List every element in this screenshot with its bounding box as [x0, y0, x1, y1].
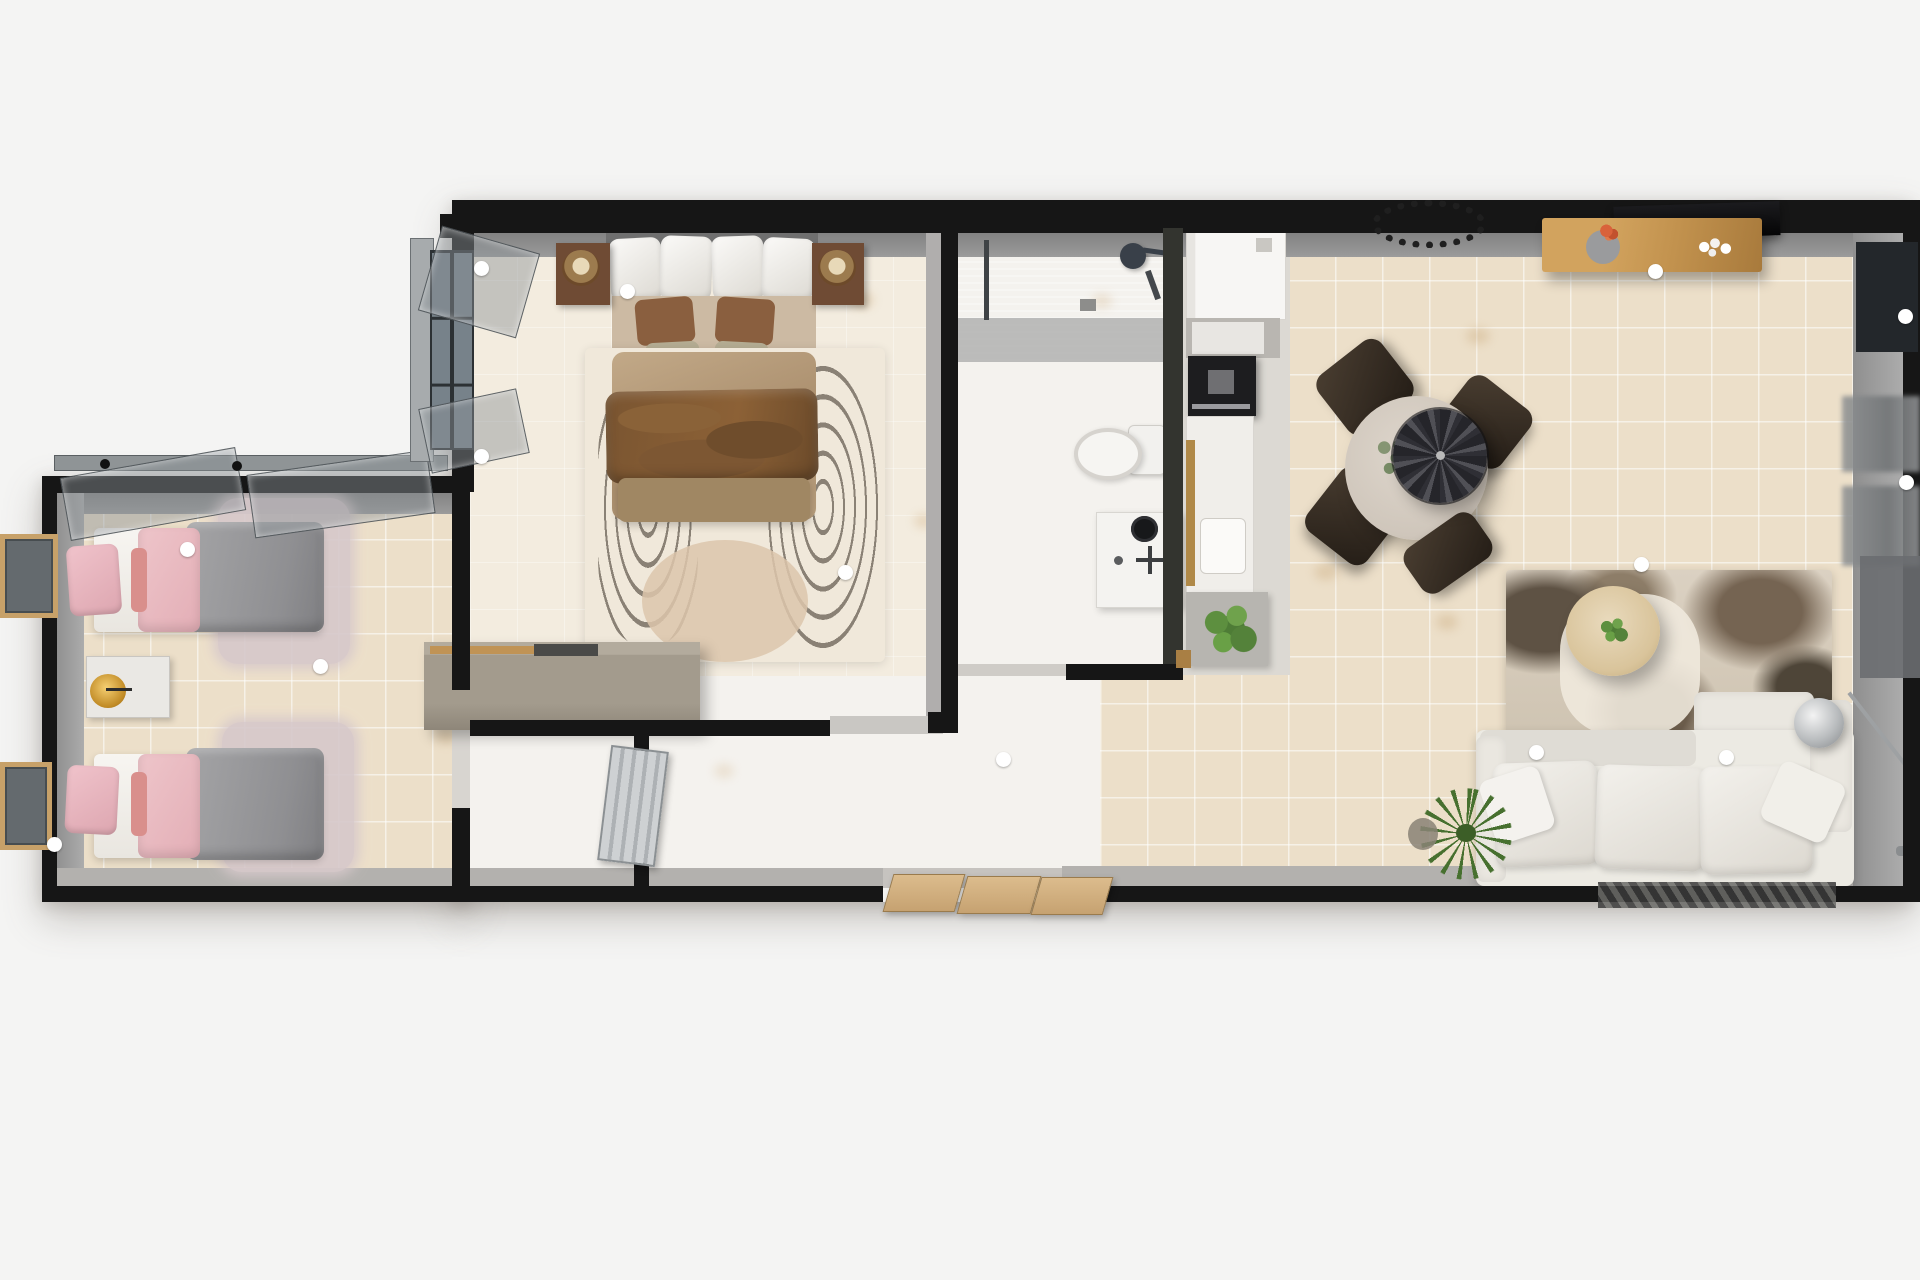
- kitchen-fridge-handle: [1256, 238, 1272, 252]
- twin-wall-frame-2[interactable]: [0, 762, 52, 850]
- wall-wing-right-lower[interactable]: [452, 808, 470, 888]
- sideboard-coral-decor[interactable]: [1688, 231, 1742, 263]
- single-bed-1-duvet-grey[interactable]: [186, 522, 324, 632]
- master-bed-foot[interactable]: [618, 478, 810, 522]
- master-lamp-left[interactable]: [562, 250, 600, 286]
- twin-wall-frame-1[interactable]: [0, 534, 58, 618]
- kitchen-planter-wood-edge: [1176, 650, 1191, 668]
- wall-master-bathroom-foot[interactable]: [928, 712, 958, 733]
- drag-handle[interactable]: [180, 542, 195, 557]
- right-wall-shelf-upper[interactable]: [1842, 396, 1920, 472]
- palm-plant-center: [1456, 824, 1476, 842]
- master-pillow-brown-2[interactable]: [714, 296, 775, 346]
- right-wall-panel-dark[interactable]: [1860, 556, 1920, 678]
- sofa-seat-cushion-2[interactable]: [1594, 764, 1708, 872]
- threshold-master-door: [830, 716, 943, 734]
- vanity-faucet-horizontal: [1136, 558, 1164, 562]
- kitchen-sink[interactable]: [1200, 518, 1246, 574]
- single-bed-2-duvet-grey[interactable]: [186, 748, 324, 860]
- master-lamp-right[interactable]: [818, 250, 856, 286]
- master-dresser-tray: [534, 644, 598, 656]
- master-pillow-brown-1[interactable]: [634, 296, 696, 347]
- drag-handle[interactable]: [620, 284, 635, 299]
- plant-basket: [1408, 818, 1438, 850]
- floorplan-scene: [0, 0, 1920, 1280]
- toilet-bowl[interactable]: [1074, 428, 1142, 480]
- vanity-soap-dish: [1114, 556, 1123, 565]
- wall-master-bathroom[interactable]: [941, 214, 958, 733]
- single-bed-2-pillow[interactable]: [64, 765, 119, 836]
- drag-handle[interactable]: [1719, 750, 1734, 765]
- twin-lamp-stem: [106, 688, 132, 691]
- coffee-table-plant[interactable]: [1596, 614, 1632, 646]
- drag-handle[interactable]: [1634, 557, 1649, 572]
- kitchen-wood-strip: [1186, 440, 1195, 586]
- drag-handle[interactable]: [996, 752, 1011, 767]
- floor-stain: [1436, 614, 1458, 630]
- twin-window-hinge-1: [100, 459, 110, 469]
- single-bed-1-pillow[interactable]: [66, 543, 123, 616]
- wreath-decor[interactable]: [1372, 200, 1486, 248]
- master-dresser-wood-top: [430, 646, 534, 654]
- threshold-bathroom-door: [957, 664, 1068, 676]
- right-wall-shelf-lower[interactable]: [1842, 486, 1920, 566]
- kitchen-oven-handle: [1192, 404, 1250, 409]
- drag-handle[interactable]: [1899, 475, 1914, 490]
- entrance-step-2[interactable]: [957, 876, 1042, 914]
- pendant-lamp-center: [1436, 451, 1445, 460]
- drag-handle[interactable]: [838, 565, 853, 580]
- single-bed-2-accent-strip[interactable]: [131, 772, 147, 836]
- sideboard-vase-flowers: [1596, 222, 1622, 244]
- vessel-sink-black[interactable]: [1131, 516, 1158, 542]
- drag-handle[interactable]: [1648, 264, 1663, 279]
- wall-bathroom-bottom[interactable]: [1066, 664, 1183, 680]
- shower-glass-shadow: [957, 318, 1163, 362]
- entrance-step-1[interactable]: [883, 874, 966, 912]
- single-bed-2-duvet-pink[interactable]: [138, 754, 200, 858]
- master-pillow-white-2[interactable]: [659, 235, 713, 301]
- drag-handle[interactable]: [313, 659, 328, 674]
- kitchen-oven-window: [1208, 370, 1234, 394]
- wall-wing-right-upper[interactable]: [452, 492, 470, 690]
- drag-handle[interactable]: [474, 261, 489, 276]
- right-wall-tv-panel[interactable]: [1856, 242, 1918, 352]
- shower-head[interactable]: [1120, 243, 1146, 269]
- entrance-step-3[interactable]: [1031, 877, 1114, 915]
- shower-drain: [1080, 299, 1096, 311]
- master-pillow-white-3[interactable]: [711, 235, 765, 301]
- floorplan-canvas: [0, 0, 1920, 1280]
- drag-handle[interactable]: [1529, 745, 1544, 760]
- kitchen-counter-mid-top: [1192, 322, 1264, 354]
- wall-bathroom-kitchen[interactable]: [1163, 228, 1183, 678]
- drag-handle[interactable]: [474, 449, 489, 464]
- twin-table-lamp[interactable]: [90, 674, 126, 708]
- drag-handle[interactable]: [1898, 309, 1913, 324]
- floor-stain: [1314, 564, 1338, 580]
- master-throw-blanket[interactable]: [605, 388, 819, 484]
- single-bed-1-accent-strip[interactable]: [131, 548, 147, 612]
- floor-stain: [714, 764, 734, 778]
- shower-glass-panel[interactable]: [984, 240, 989, 320]
- arc-floor-lamp-shade[interactable]: [1794, 698, 1844, 748]
- outdoor-mat: [1598, 882, 1836, 908]
- floor-stain: [1466, 328, 1490, 344]
- wall-bottom-left[interactable]: [42, 886, 883, 902]
- kitchen-planter-plant[interactable]: [1196, 596, 1264, 662]
- master-pillow-white-4[interactable]: [760, 237, 815, 302]
- wall-master-bottom[interactable]: [470, 720, 830, 736]
- twin-window-hinge-2: [232, 461, 242, 471]
- master-pillow-white-1[interactable]: [608, 237, 663, 302]
- drag-handle[interactable]: [47, 837, 62, 852]
